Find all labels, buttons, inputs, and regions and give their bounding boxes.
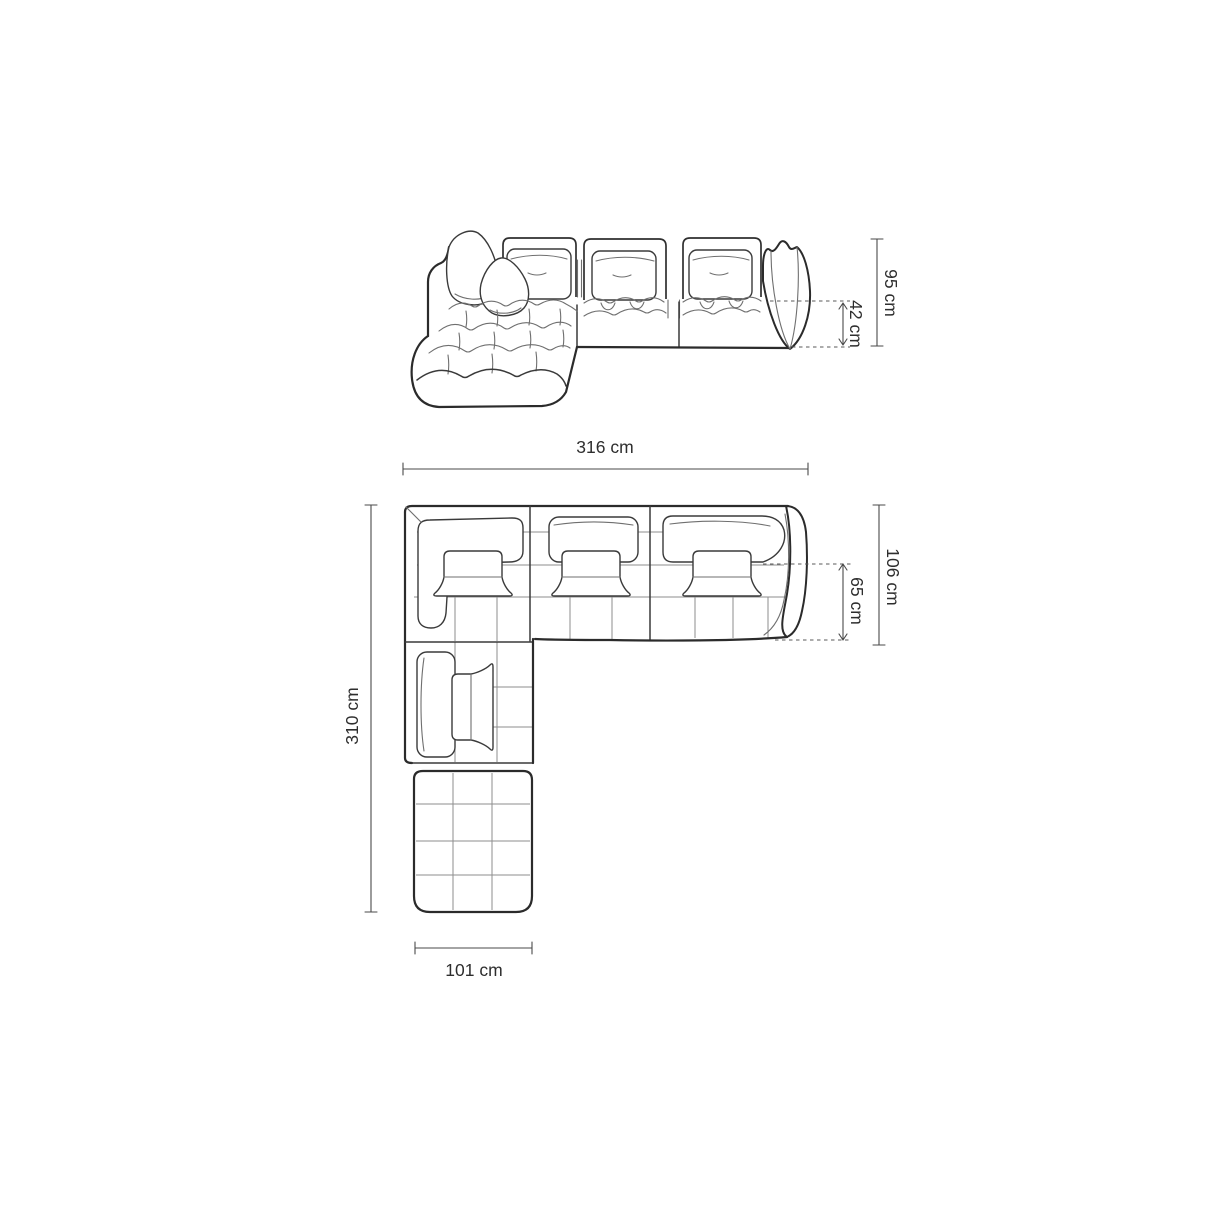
plan-outline-top [405, 506, 788, 512]
dim-label-total-width: 316 cm [576, 437, 633, 457]
seat-scallops [683, 308, 760, 315]
elevation-view: 95 cm 42 cm [412, 231, 901, 407]
dim-line-chaise-width [415, 942, 532, 954]
dim-line-seat-height [839, 303, 847, 345]
seat-tuft-arc [700, 301, 743, 309]
tuft-tick [448, 352, 537, 374]
pillow-plan [552, 551, 630, 596]
diagram-svg: 95 cm 42 cm [0, 0, 1214, 1214]
back-cushion [592, 251, 656, 300]
panel-seam [578, 260, 582, 297]
ottoman-grid [416, 773, 530, 910]
tuft-row [439, 322, 571, 331]
seat-front-bottom [577, 347, 789, 348]
dim-label-total-height: 95 cm [881, 269, 901, 317]
dim-label-seat-depth: 65 cm [847, 577, 867, 625]
dim-line-total-width [403, 463, 808, 475]
tuft-tick [459, 330, 564, 350]
pillow-plan [683, 551, 761, 596]
dim-label-total-length: 310 cm [342, 687, 362, 744]
plan-sofa-drawing [405, 506, 807, 912]
dim-line-seat-depth [839, 564, 847, 640]
dim-label-chaise-width: 101 cm [445, 960, 502, 980]
seat-scallops [584, 309, 666, 316]
seat-tuft-arc [601, 302, 644, 310]
dim-line-total-length [365, 505, 377, 912]
panel-seam [668, 300, 680, 318]
plan-front-edge [535, 637, 787, 641]
right-arm [763, 241, 810, 349]
sofa-dimension-diagram: 95 cm 42 cm [0, 0, 1214, 1214]
seat-grid [455, 597, 768, 641]
plan-right-arm [782, 506, 807, 637]
chaise-front-row [417, 369, 566, 386]
pillow-plan-vertical [452, 664, 493, 750]
elevation-sofa-drawing [412, 231, 810, 407]
plan-view: 316 cm 310 cm 106 cm 65 cm 101 cm [342, 437, 903, 980]
corner-miter [406, 507, 421, 522]
dim-label-seat-height: 42 cm [846, 300, 866, 348]
pillow-plan [434, 551, 512, 596]
left-arm [428, 247, 449, 336]
tuft-row [429, 345, 570, 353]
plan-outline-left [405, 512, 412, 763]
dim-label-total-depth: 106 cm [883, 548, 903, 605]
